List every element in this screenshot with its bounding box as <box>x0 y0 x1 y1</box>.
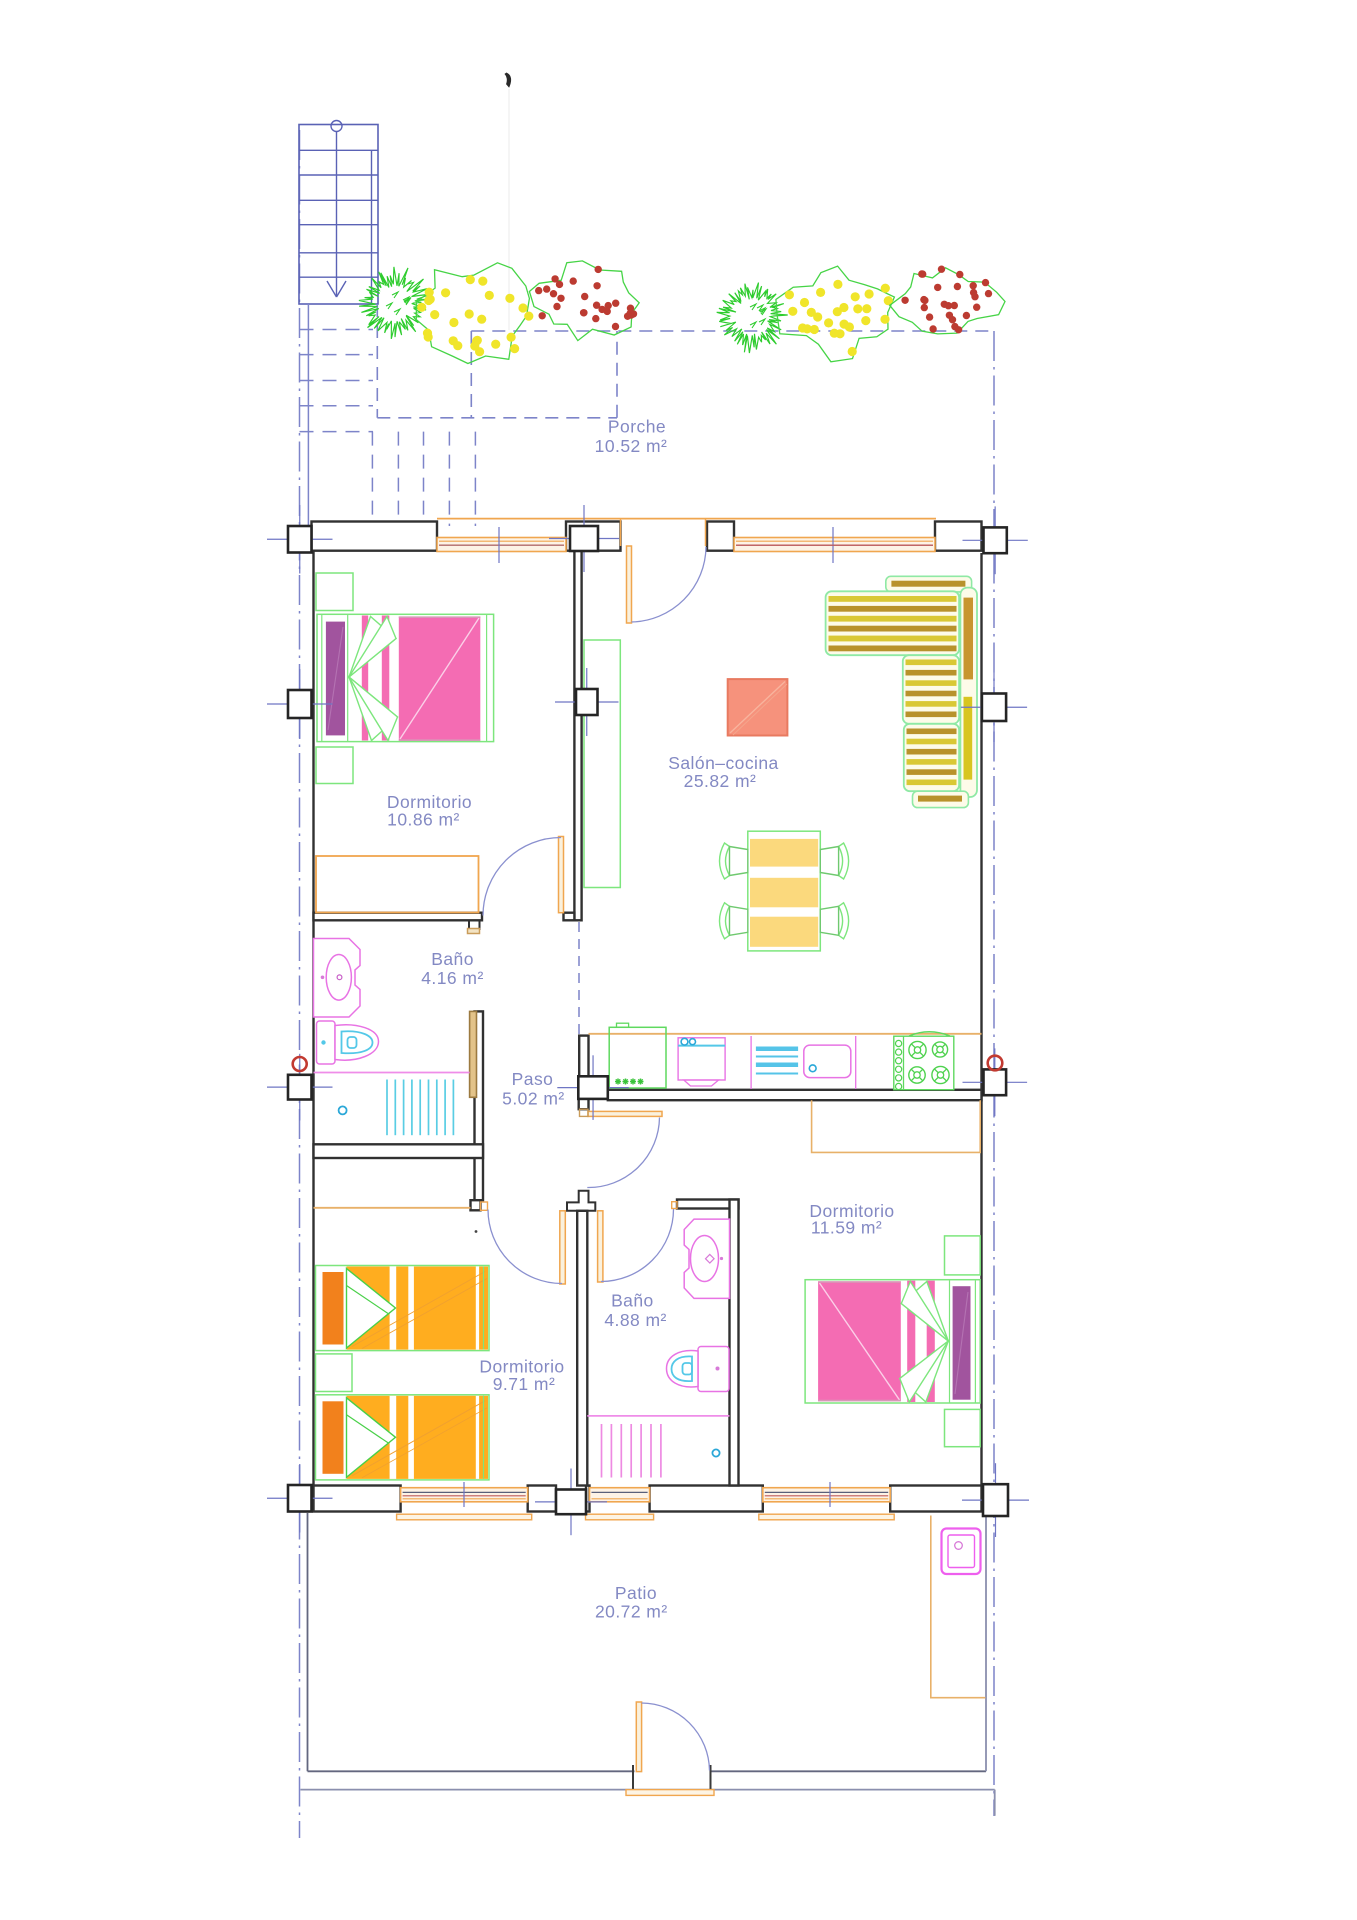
svg-text:10.86 m²: 10.86 m² <box>387 810 460 830</box>
svg-text:25.82 m²: 25.82 m² <box>684 771 757 791</box>
svg-text:Paso: Paso <box>512 1069 554 1089</box>
svg-text:Patio: Patio <box>615 1583 657 1603</box>
svg-text:4.88 m²: 4.88 m² <box>604 1310 666 1330</box>
svg-text:20.72 m²: 20.72 m² <box>595 1602 668 1622</box>
svg-text:Baño: Baño <box>431 949 474 969</box>
svg-text:Baño: Baño <box>611 1291 654 1311</box>
svg-text:10.52 m²: 10.52 m² <box>595 436 668 456</box>
svg-text:11.59 m²: 11.59 m² <box>811 1218 882 1238</box>
svg-text:Salón–cocina: Salón–cocina <box>668 753 778 773</box>
svg-text:9.71 m²: 9.71 m² <box>493 1374 555 1394</box>
svg-text:4.16 m²: 4.16 m² <box>421 968 483 988</box>
svg-text:Porche: Porche <box>608 417 666 437</box>
svg-text:5.02 m²: 5.02 m² <box>502 1089 564 1109</box>
